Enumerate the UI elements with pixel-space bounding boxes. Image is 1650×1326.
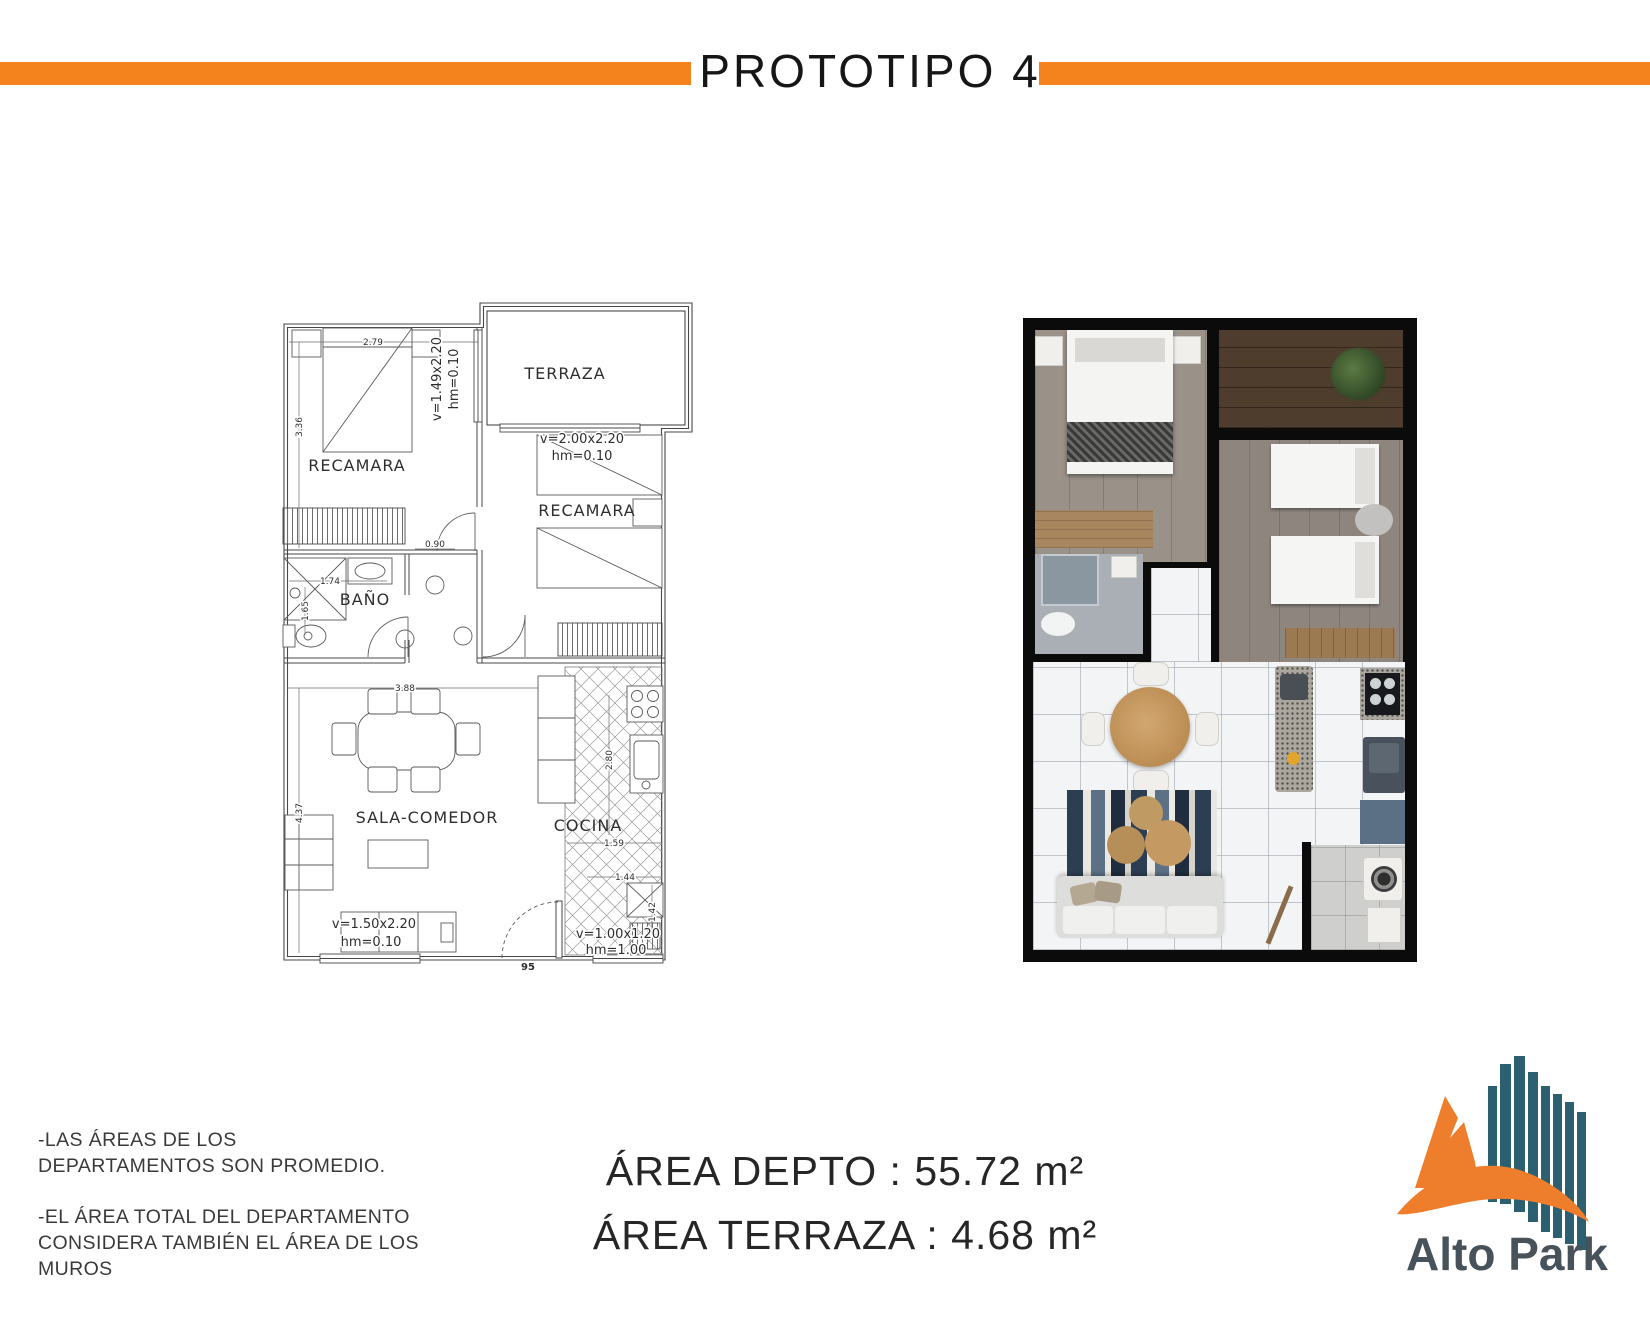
dining-table <box>1110 687 1190 767</box>
single-bed <box>1271 444 1379 508</box>
utility-box <box>1367 907 1401 943</box>
chair <box>1081 712 1105 746</box>
dim-159: 1.59 <box>604 839 624 849</box>
sofa <box>1057 876 1223 938</box>
dim-165: 1.65 <box>301 601 311 621</box>
annot-window4: v=1.00x1.20 <box>576 927 660 942</box>
label-kitchen: COCINA <box>554 816 623 835</box>
header-bar-right <box>1039 62 1650 85</box>
dim-280: 2.80 <box>605 750 615 770</box>
closet-bedroom1 <box>283 508 405 544</box>
note-2: -EL ÁREA TOTAL DEL DEPARTAMENTO CONSIDER… <box>38 1205 468 1282</box>
double-bed <box>1067 330 1173 474</box>
dim-437: 4.37 <box>295 803 305 823</box>
coffee-table <box>1107 826 1145 864</box>
pillow <box>1355 448 1375 504</box>
render-bedroom1 <box>1035 330 1207 562</box>
slide: PROTOTIPO 4 <box>0 0 1650 1326</box>
annot-window1: v=1.49x2.20 <box>430 337 445 421</box>
render-bedroom2 <box>1219 440 1403 662</box>
alto-park-logo: Alto Park <box>1387 1030 1627 1290</box>
chair <box>1133 662 1169 686</box>
annot-window2: v=2.00x2.20 <box>540 432 624 447</box>
door-leaf <box>1266 885 1294 944</box>
note-1-line-1: -LAS ÁREAS DE LOS <box>38 1129 237 1151</box>
logo-wordmark: Alto Park <box>1406 1228 1608 1280</box>
render-top-view <box>1023 318 1417 962</box>
note-2-line-3: MUROS <box>38 1258 113 1280</box>
dim-090: 0.90 <box>425 540 445 550</box>
kitchen-island <box>1275 666 1313 792</box>
plant <box>1331 348 1385 400</box>
render-bathroom <box>1035 554 1143 654</box>
burner <box>1384 678 1395 689</box>
area-figures: ÁREA DEPTO : 55.72 m² ÁREA TERRAZA : 4.6… <box>555 1148 1135 1259</box>
dresser <box>1285 628 1395 658</box>
label-bathroom: BAÑO <box>340 590 390 609</box>
burner <box>1384 694 1395 705</box>
toilet <box>1041 612 1075 636</box>
fruit-bowl <box>1287 752 1300 765</box>
bath-mat <box>1111 556 1137 578</box>
dim-174: 1.74 <box>320 577 340 587</box>
dim-entry-95: 95 <box>521 962 535 973</box>
area-terraza: ÁREA TERRAZA : 4.68 m² <box>555 1212 1135 1259</box>
burner <box>1370 694 1381 705</box>
blue-cabinet <box>1360 800 1405 844</box>
bed-throw <box>1067 422 1173 462</box>
dim-388: 3.88 <box>395 684 415 694</box>
pillow <box>1355 542 1375 598</box>
note-1: -LAS ÁREAS DE LOS DEPARTAMENTOS SON PROM… <box>38 1128 468 1179</box>
label-living: SALA-COMEDOR <box>356 808 499 827</box>
page-title: PROTOTIPO 4 <box>660 44 1080 98</box>
pillows <box>1075 338 1165 362</box>
label-terrace: TERRAZA <box>523 364 605 383</box>
wall-stub <box>1302 842 1311 950</box>
label-bedroom2: RECAMARA <box>538 501 636 520</box>
sofa-cushion <box>1115 906 1165 934</box>
annot-window1-hm: hm=0.10 <box>447 349 462 410</box>
single-bed <box>1271 536 1379 604</box>
sofa-cushion <box>1063 906 1113 934</box>
note-2-line-2: CONSIDERA TAMBIÉN EL ÁREA DE LOS <box>38 1232 419 1254</box>
coffee-table <box>1145 820 1191 866</box>
pillow <box>1094 880 1123 903</box>
closet-bedroom2 <box>558 623 662 656</box>
chair <box>1195 712 1219 746</box>
note-2-line-1: -EL ÁREA TOTAL DEL DEPARTAMENTO <box>38 1206 410 1228</box>
kitchen-sink-unit <box>1363 737 1405 793</box>
render-terrace <box>1219 330 1403 428</box>
annot-window4-hm: hm=1.00 <box>586 943 647 958</box>
round-side-table <box>1355 504 1393 536</box>
label-bedroom1: RECAMARA <box>308 456 406 475</box>
dim-279: 2.79 <box>363 338 383 348</box>
dim-144: 1.44 <box>615 873 635 883</box>
logo-buildings <box>1488 1056 1586 1250</box>
annot-window3-hm: hm=0.10 <box>341 935 402 950</box>
dim-142: 1.42 <box>648 902 658 922</box>
annot-window3: v=1.50x2.20 <box>332 917 416 932</box>
annot-window2-hm: hm=0.10 <box>552 449 613 464</box>
shower <box>1041 554 1099 606</box>
render-living-kitchen <box>1033 662 1405 950</box>
desk <box>1035 510 1153 548</box>
header-bar-left <box>0 62 691 85</box>
island-sink <box>1280 674 1308 700</box>
render-hallway <box>1151 568 1211 662</box>
burner <box>1370 678 1381 689</box>
sink-basin <box>1369 743 1399 773</box>
note-1-line-2: DEPARTAMENTOS SON PROMEDIO. <box>38 1155 385 1177</box>
sofa-cushion <box>1167 906 1217 934</box>
stove-counter <box>1360 668 1405 720</box>
floor-plan-drawing: RECAMARA TERRAZA RECAMARA BAÑO SALA-COME… <box>275 295 695 985</box>
utility-room <box>1311 845 1405 950</box>
area-depto: ÁREA DEPTO : 55.72 m² <box>555 1148 1135 1195</box>
disclaimer-notes: -LAS ÁREAS DE LOS DEPARTAMENTOS SON PROM… <box>38 1128 468 1309</box>
nightstand <box>1035 336 1063 366</box>
ac-fan <box>1371 866 1397 892</box>
dim-336: 3.36 <box>295 417 305 437</box>
ac-unit <box>1363 857 1403 901</box>
